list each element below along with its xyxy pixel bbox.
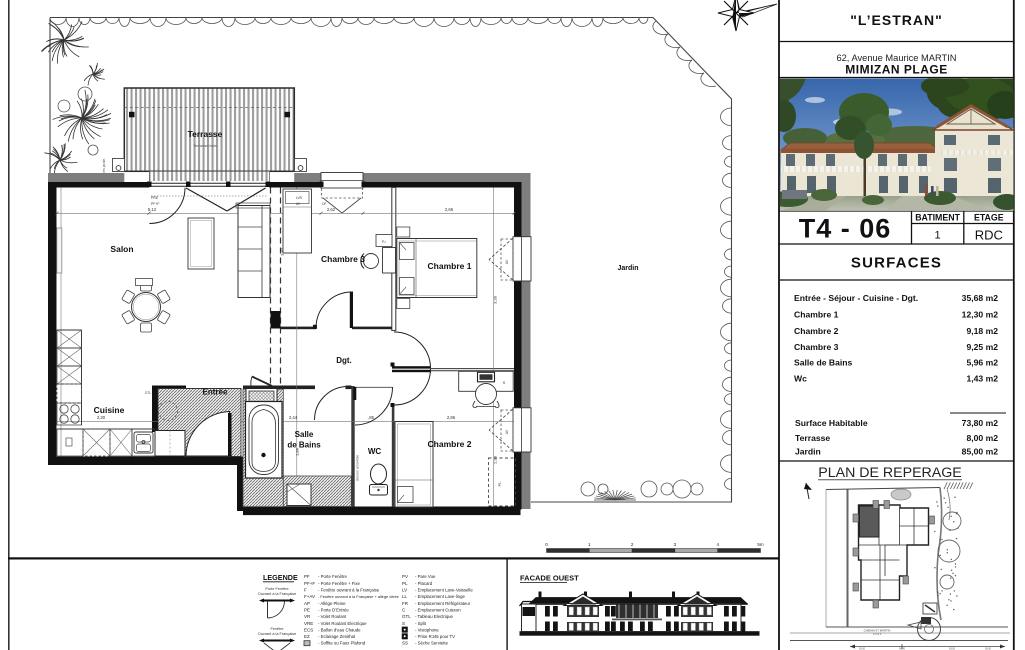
svg-text:Jardin: Jardin xyxy=(617,265,638,272)
svg-text:Chambre 1: Chambre 1 xyxy=(794,310,839,320)
svg-text:9,18 m2: 9,18 m2 xyxy=(966,326,998,336)
svg-text:1,43 m2: 1,43 m2 xyxy=(966,374,998,384)
svg-text:2,86: 2,86 xyxy=(447,415,456,420)
svg-text:- Porte Fenêtre: - Porte Fenêtre xyxy=(318,574,348,579)
svg-text:Surface Habitable: Surface Habitable xyxy=(795,418,868,428)
svg-text:Salle: Salle xyxy=(295,430,314,439)
svg-text:2,44: 2,44 xyxy=(289,415,298,420)
svg-text:PLAN DE REPERAGE: PLAN DE REPERAGE xyxy=(818,465,962,481)
svg-text:Salle de Bains: Salle de Bains xyxy=(794,358,852,368)
svg-text:- Porte Fenêtre + Fixe: - Porte Fenêtre + Fixe xyxy=(318,581,361,586)
svg-text:Ouvrant à la Française: Ouvrant à la Française xyxy=(258,592,296,596)
svg-text:,85: ,85 xyxy=(368,415,375,420)
svg-text:FR: FR xyxy=(402,601,409,606)
svg-text:PV: PV xyxy=(402,574,408,579)
svg-text:2,62: 2,62 xyxy=(327,207,336,212)
svg-text:- Visiophone: - Visiophone xyxy=(415,627,439,632)
svg-text:CHEMIN ST MARTIN: CHEMIN ST MARTIN xyxy=(864,629,891,633)
svg-text:Terrasse: Terrasse xyxy=(188,129,223,139)
svg-text:ETAGE: ETAGE xyxy=(974,213,1004,223)
svg-text:- Eclairage Zenithal: - Eclairage Zenithal xyxy=(318,634,355,639)
svg-text:WC: WC xyxy=(368,447,382,456)
svg-text:SS: SS xyxy=(402,641,408,646)
svg-text:F: F xyxy=(304,588,307,593)
svg-text:Chambre 3: Chambre 3 xyxy=(321,254,365,264)
svg-text:Salon: Salon xyxy=(110,244,133,254)
svg-text:12,30 m2: 12,30 m2 xyxy=(962,310,999,320)
svg-text:9,25 m2: 9,25 m2 xyxy=(966,342,998,352)
svg-text:"L’ESTRAN": "L’ESTRAN" xyxy=(850,12,943,28)
svg-text:LV: LV xyxy=(402,588,407,593)
svg-text:Terrasse: Terrasse xyxy=(795,433,830,443)
svg-text:Porte Fenêtre: Porte Fenêtre xyxy=(265,587,288,591)
svg-text:85,00 m2: 85,00 m2 xyxy=(962,447,999,457)
svg-text:Jardin: Jardin xyxy=(795,447,821,457)
svg-text:Cuisine: Cuisine xyxy=(94,405,125,415)
svg-text:GTL: GTL xyxy=(145,391,152,395)
svg-text:Entrée: Entrée xyxy=(203,388,228,397)
svg-text:AV: AV xyxy=(505,259,509,264)
svg-text:1: 1 xyxy=(935,230,941,242)
svg-text:3,38: 3,38 xyxy=(493,295,498,304)
svg-text:PRE: PRE xyxy=(151,196,159,200)
svg-text:- Soffite ou Faux Plafond: - Soffite ou Faux Plafond xyxy=(318,641,366,646)
svg-text:Chambre 3: Chambre 3 xyxy=(794,342,839,352)
svg-text:62, Avenue Maurice MARTIN: 62, Avenue Maurice MARTIN xyxy=(836,53,956,63)
svg-text:PF+F: PF+F xyxy=(151,202,159,206)
svg-text:- Prise RJ45 pour TV: - Prise RJ45 pour TV xyxy=(415,634,455,639)
svg-text:- Volet Roulant Electrique: - Volet Roulant Electrique xyxy=(318,621,367,626)
svg-text:EZ: EZ xyxy=(304,634,310,639)
svg-text:- Sèche Serviette: - Sèche Serviette xyxy=(415,641,449,646)
svg-text:2,30: 2,30 xyxy=(97,415,106,420)
svg-text:- Pare Vue: - Pare Vue xyxy=(415,574,436,579)
svg-text:FACADE OUEST: FACADE OUEST xyxy=(520,574,579,583)
svg-text:RDC: RDC xyxy=(975,228,1003,243)
svg-text:- Emplacement Lave-Vaisselle: - Emplacement Lave-Vaisselle xyxy=(415,588,473,593)
svg-text:VR: VR xyxy=(304,614,311,619)
svg-text:Chambre 2: Chambre 2 xyxy=(428,439,472,449)
svg-text:Chambre 2: Chambre 2 xyxy=(794,326,839,336)
svg-text:8,00 m2: 8,00 m2 xyxy=(966,433,998,443)
svg-text:- Fenêtre ouvrant à la Françai: - Fenêtre ouvrant à la Française xyxy=(318,588,380,593)
svg-text:5m: 5m xyxy=(757,542,764,547)
svg-text:PE: PE xyxy=(304,607,310,612)
svg-text:- Porte D’Entrée: - Porte D’Entrée xyxy=(318,607,349,612)
svg-text:Fenêtre: Fenêtre xyxy=(270,627,283,631)
svg-text:OF: OF xyxy=(322,202,326,206)
svg-text:AP: AP xyxy=(304,601,310,606)
svg-text:LL: LL xyxy=(402,594,408,599)
svg-text:Terrasse bois: Terrasse bois xyxy=(193,143,217,148)
svg-text:5,96 m2: 5,96 m2 xyxy=(966,358,998,368)
svg-text:- Emplacement Cuisson: - Emplacement Cuisson xyxy=(415,607,461,612)
svg-text:GTL: GTL xyxy=(402,614,411,619)
svg-text:- Fenêtre ouvrant à la Françai: - Fenêtre ouvrant à la Française + allèg… xyxy=(318,594,399,599)
svg-text:- Tableau Electrique: - Tableau Electrique xyxy=(415,614,454,619)
svg-text:Dgt.: Dgt. xyxy=(336,356,352,365)
svg-text:5,12: 5,12 xyxy=(148,207,157,212)
svg-text:PF+F: PF+F xyxy=(304,581,315,586)
svg-text:- Allège Pleine: - Allège Pleine xyxy=(318,601,346,606)
svg-text:S: S xyxy=(503,380,506,385)
svg-text:cloison amovible: cloison amovible xyxy=(356,455,360,482)
svg-text:SURFACES: SURFACES xyxy=(851,255,942,272)
svg-text:de Bains: de Bains xyxy=(287,441,321,450)
svg-text:S: S xyxy=(402,621,405,626)
svg-text:ECS: ECS xyxy=(304,627,313,632)
svg-text:PL: PL xyxy=(497,481,502,487)
svg-text:F+AV: F+AV xyxy=(304,594,315,599)
svg-text:PF: PF xyxy=(304,574,310,579)
svg-text:P⌂: P⌂ xyxy=(382,240,386,244)
svg-text:Wc: Wc xyxy=(794,374,807,384)
svg-text:- Ballon d’eau Chaude: - Ballon d’eau Chaude xyxy=(318,627,361,632)
svg-text:VRE: VRE xyxy=(304,621,313,626)
svg-text:- Emplacement Lave-linge: - Emplacement Lave-linge xyxy=(415,594,466,599)
svg-text:LVR: LVR xyxy=(296,196,303,200)
svg-text:- Emplacement Réfrigérateur: - Emplacement Réfrigérateur xyxy=(415,601,471,606)
svg-text:LEGENDE: LEGENDE xyxy=(263,573,298,582)
svg-text:73,80 m2: 73,80 m2 xyxy=(962,418,999,428)
svg-text:Ouvrant à la Française: Ouvrant à la Française xyxy=(258,632,296,636)
svg-text:MIMIZAN PLAGE: MIMIZAN PLAGE xyxy=(845,63,948,77)
svg-text:AV: AV xyxy=(505,429,509,434)
svg-text:- Volet Roulant: - Volet Roulant xyxy=(318,614,347,619)
svg-text:2,66: 2,66 xyxy=(445,207,454,212)
svg-text:Chambre 1: Chambre 1 xyxy=(428,261,472,271)
svg-text:- Placard: - Placard xyxy=(415,581,433,586)
svg-text:T4 - 06: T4 - 06 xyxy=(799,214,892,244)
svg-text:Entrée - Séjour - Cuisine - Dg: Entrée - Séjour - Cuisine - Dgt. xyxy=(794,293,918,303)
svg-text:35,68 m2: 35,68 m2 xyxy=(962,293,999,303)
svg-text:V.C.N.3: V.C.N.3 xyxy=(873,633,882,636)
svg-text:2,98: 2,98 xyxy=(493,455,498,464)
svg-text:PL: PL xyxy=(402,581,408,586)
svg-text:BATIMENT: BATIMENT xyxy=(915,213,960,223)
svg-text:- Split: - Split xyxy=(415,621,427,626)
